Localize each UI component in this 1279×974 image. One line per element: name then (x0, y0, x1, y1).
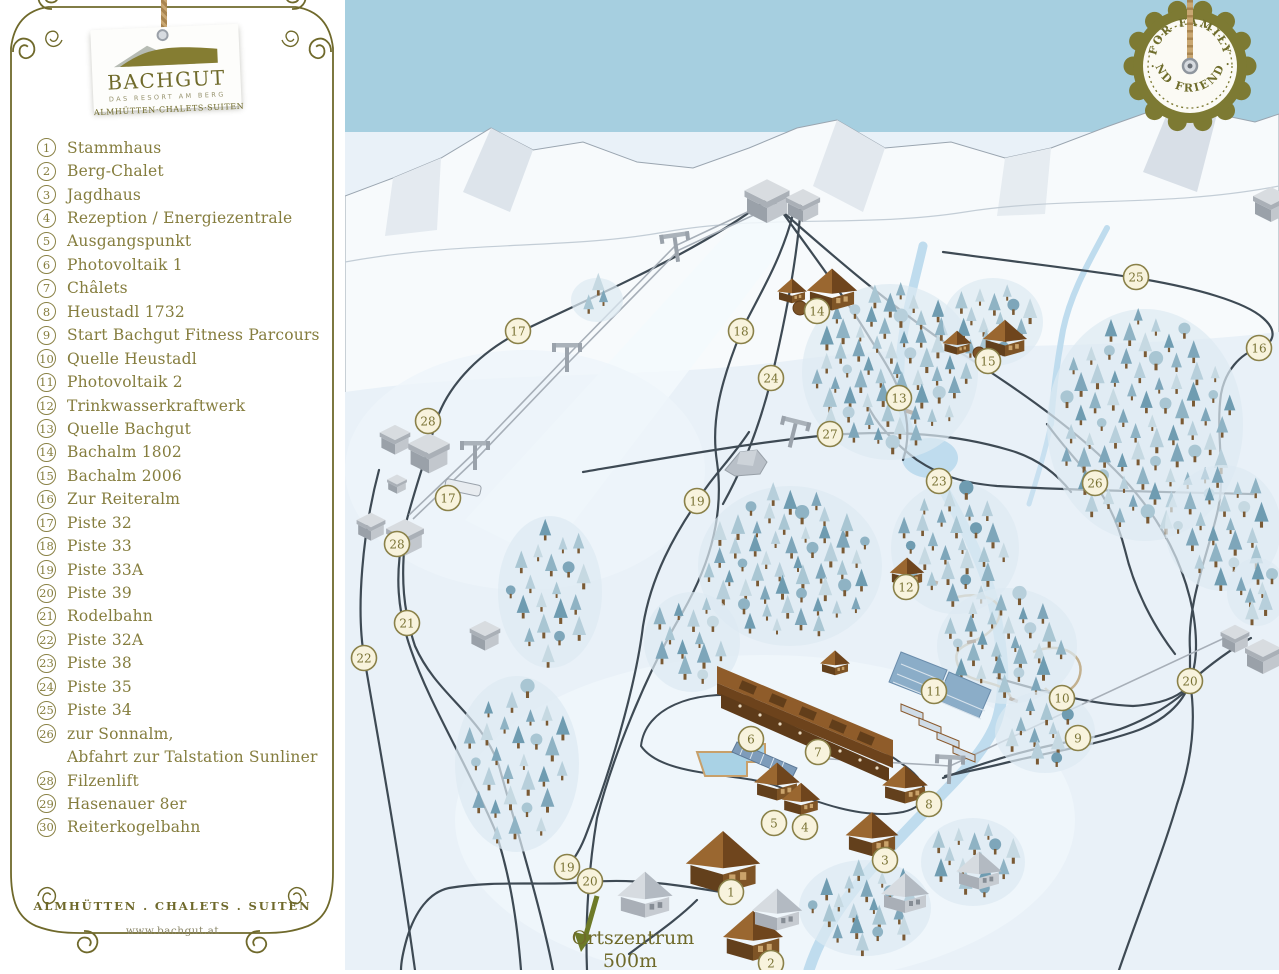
legend-label: Piste 32 (67, 514, 132, 532)
svg-text:16: 16 (1251, 342, 1266, 356)
legend-number-badge: 3 (37, 185, 56, 204)
svg-text:1: 1 (727, 886, 735, 900)
legend-number-badge: 21 (37, 607, 56, 626)
legend-item-29: 29Hasenauer 8er (0, 792, 345, 815)
legend-item-9: 9Start Bachgut Fitness Parcours (0, 324, 345, 347)
footer-website-link[interactable]: www.bachgut.at (0, 925, 345, 937)
legend-label: Piste 39 (67, 584, 132, 602)
legend-label: Piste 34 (67, 701, 132, 719)
map-illustration: 1718142516152413282723261917281221222011… (345, 0, 1279, 970)
legend-label: Photovoltaik 1 (67, 256, 183, 274)
map-marker-25: 25 (1124, 265, 1149, 290)
legend-item-1: 1Stammhaus (0, 136, 345, 159)
legend-item-21: 21Rodelbahn (0, 605, 345, 628)
legend-item-17: 17Piste 32 (0, 511, 345, 534)
legend-label: Piste 35 (67, 678, 132, 696)
legend-number-badge: 6 (37, 255, 56, 274)
legend-number-badge: 1 (37, 138, 56, 157)
svg-text:7: 7 (814, 746, 822, 760)
svg-text:20: 20 (1182, 675, 1197, 689)
legend-number-badge: 12 (37, 396, 56, 415)
map-marker-24: 24 (759, 366, 784, 391)
svg-text:11: 11 (926, 685, 941, 699)
legend-number-badge: 8 (37, 302, 56, 321)
map-marker-20: 20 (578, 869, 603, 894)
map-marker-10: 10 (1050, 686, 1075, 711)
legend-number-badge: 29 (37, 794, 56, 813)
legend-number-badge: 30 (37, 818, 56, 837)
svg-text:17: 17 (440, 492, 455, 506)
legend-item-30: 30Reiterkogelbahn (0, 816, 345, 839)
legend-number-badge: 22 (37, 630, 56, 649)
legend-label: Quelle Bachgut (67, 420, 191, 438)
map-marker-23: 23 (927, 469, 952, 494)
map-marker-11: 11 (922, 679, 947, 704)
legend-number-badge: 16 (37, 490, 56, 509)
map-marker-4: 4 (793, 815, 818, 840)
svg-text:14: 14 (809, 305, 825, 319)
svg-text:18: 18 (733, 325, 748, 339)
svg-text:3: 3 (881, 854, 889, 868)
legend-item-14: 14Bachalm 1802 (0, 441, 345, 464)
mountain-logo-icon (105, 37, 226, 68)
legend-item-20: 20Piste 39 (0, 581, 345, 604)
legend-number-badge: 13 (37, 419, 56, 438)
legend-item-4: 4Rezeption / Energiezentrale (0, 206, 345, 229)
legend-number-badge: 23 (37, 654, 56, 673)
map-marker-19: 19 (555, 855, 580, 880)
map-marker-21: 21 (395, 611, 420, 636)
legend-label: Stammhaus (67, 139, 161, 157)
legend-number-badge: 17 (37, 513, 56, 532)
legend-label: Zur Reiteralm (67, 490, 180, 508)
svg-text:28: 28 (389, 538, 404, 552)
map-marker-9: 9 (1066, 726, 1091, 751)
map-marker-28: 28 (416, 409, 441, 434)
footer-tagline: ALMHÜTTEN . CHALETS . SUITEN (0, 899, 345, 913)
legend-number-badge: 14 (37, 443, 56, 462)
legend-item-23: 23Piste 38 (0, 652, 345, 675)
legend-item-18: 18Piste 33 (0, 534, 345, 557)
resort-map: 1718142516152413282723261917281221222011… (345, 0, 1279, 970)
legend-number-badge: 7 (37, 279, 56, 298)
legend-item-12: 12Trinkwasserkraftwerk (0, 394, 345, 417)
legend-label: Photovoltaik 2 (67, 373, 183, 391)
legend-sidebar: BACHGUT DAS RESORT AM BERG ALMHÜTTEN·CHA… (0, 0, 345, 970)
legend-item-3: 3Jagdhaus (0, 183, 345, 206)
map-marker-8: 8 (917, 792, 942, 817)
legend-item-13: 13Quelle Bachgut (0, 417, 345, 440)
legend-number-badge: 4 (37, 209, 56, 228)
legend-label: Trinkwasserkraftwerk (67, 397, 245, 415)
legend-label: Heustadl 1732 (67, 303, 185, 321)
svg-text:22: 22 (356, 652, 371, 666)
svg-text:19: 19 (559, 861, 574, 875)
legend-number-badge: 19 (37, 560, 56, 579)
map-marker-19: 19 (685, 489, 710, 514)
legend-number-badge: 10 (37, 349, 56, 368)
svg-text:2: 2 (767, 957, 775, 971)
legend-item-19: 19Piste 33A (0, 558, 345, 581)
map-marker-2: 2 (759, 951, 784, 971)
map-marker-13: 13 (887, 386, 912, 411)
legend-label: Ausgangspunkt (67, 232, 191, 250)
legend-number-badge: 20 (37, 584, 56, 603)
tree-cluster (498, 516, 602, 668)
legend-list: 1Stammhaus2Berg-Chalet3Jagdhaus4Rezeptio… (0, 136, 345, 839)
legend-item-8: 8Heustadl 1732 (0, 300, 345, 323)
svg-text:17: 17 (510, 325, 525, 339)
legend-label: Jagdhaus (67, 186, 141, 204)
legend-label: Piste 33A (67, 561, 143, 579)
legend-item-2: 2Berg-Chalet (0, 159, 345, 182)
legend-item-11: 11Photovoltaik 2 (0, 370, 345, 393)
map-marker-17: 17 (506, 319, 531, 344)
map-marker-5: 5 (762, 811, 787, 836)
legend-label: Piste 32A (67, 631, 143, 649)
svg-text:8: 8 (925, 798, 933, 812)
svg-text:12: 12 (898, 581, 913, 595)
map-marker-17: 17 (436, 486, 461, 511)
legend-number-badge: 2 (37, 162, 56, 181)
legend-label: Châlets (67, 279, 128, 297)
legend-number-badge: 26 (37, 724, 56, 743)
map-marker-22: 22 (352, 646, 377, 671)
map-marker-15: 15 (976, 349, 1001, 374)
legend-item-25: 25Piste 34 (0, 699, 345, 722)
legend-item-7: 7Châlets (0, 277, 345, 300)
map-marker-1: 1 (719, 880, 744, 905)
map-marker-3: 3 (873, 848, 898, 873)
resort-logo-card: BACHGUT DAS RESORT AM BERG ALMHÜTTEN·CHA… (90, 24, 241, 112)
legend-item-26: 26zur Sonnalm, (0, 722, 345, 745)
legend-label: Berg-Chalet (67, 162, 164, 180)
svg-text:13: 13 (891, 392, 906, 406)
svg-text:24: 24 (763, 372, 779, 386)
svg-text:5: 5 (770, 817, 778, 831)
legend-number-badge: 18 (37, 537, 56, 556)
legend-item-22: 22Piste 32A (0, 628, 345, 651)
legend-label: Filzenlift (67, 772, 139, 790)
svg-text:26: 26 (1087, 477, 1102, 491)
ortszentrum-distance: 500m (603, 950, 657, 970)
legend-label: Piste 38 (67, 654, 132, 672)
map-marker-28: 28 (385, 532, 410, 557)
legend-label: zur Sonnalm, (67, 725, 174, 743)
map-marker-16: 16 (1247, 336, 1272, 361)
svg-text:20: 20 (582, 875, 597, 889)
legend-label: Rezeption / Energiezentrale (67, 209, 292, 227)
legend-number-badge: 9 (37, 326, 56, 345)
svg-text:15: 15 (980, 355, 995, 369)
svg-text:10: 10 (1054, 692, 1069, 706)
svg-text:9: 9 (1074, 732, 1082, 746)
legend-item-6: 6Photovoltaik 1 (0, 253, 345, 276)
legend-item-26-cont: Abfahrt zur Talstation Sunliner (0, 745, 345, 768)
legend-item-16: 16Zur Reiteralm (0, 488, 345, 511)
legend-number-badge: 25 (37, 701, 56, 720)
legend-label: Abfahrt zur Talstation Sunliner (67, 748, 318, 766)
legend-item-10: 10Quelle Heustadl (0, 347, 345, 370)
legend-label: Rodelbahn (67, 607, 153, 625)
legend-item-24: 24Piste 35 (0, 675, 345, 698)
svg-text:6: 6 (747, 733, 755, 747)
legend-number-badge: 28 (37, 771, 56, 790)
svg-text:27: 27 (822, 428, 837, 442)
ortszentrum-label: Ortszentrum (572, 927, 695, 949)
legend-item-28: 28Filzenlift (0, 769, 345, 792)
tree-cluster (455, 676, 579, 852)
legend-item-15: 15Bachalm 2006 (0, 464, 345, 487)
map-marker-26: 26 (1083, 471, 1108, 496)
map-marker-14: 14 (805, 299, 830, 324)
svg-text:25: 25 (1128, 271, 1143, 285)
legend-number-badge: 24 (37, 677, 56, 696)
legend-item-5: 5Ausgangspunkt (0, 230, 345, 253)
legend-label: Piste 33 (67, 537, 132, 555)
svg-text:28: 28 (420, 415, 435, 429)
legend-label: Bachalm 2006 (67, 467, 182, 485)
legend-number-badge: 15 (37, 466, 56, 485)
map-marker-27: 27 (818, 422, 843, 447)
legend-label: Hasenauer 8er (67, 795, 187, 813)
legend-number-badge: 5 (37, 232, 56, 251)
legend-number-badge: 11 (37, 373, 56, 392)
svg-text:4: 4 (801, 821, 809, 835)
map-marker-12: 12 (894, 575, 919, 600)
legend-label: Bachalm 1802 (67, 443, 182, 461)
legend-label: Reiterkogelbahn (67, 818, 201, 836)
svg-text:19: 19 (689, 495, 704, 509)
legend-label: Quelle Heustadl (67, 350, 197, 368)
legend-label: Start Bachgut Fitness Parcours (67, 326, 320, 344)
svg-text:23: 23 (931, 475, 946, 489)
svg-text:21: 21 (399, 617, 414, 631)
map-marker-18: 18 (729, 319, 754, 344)
map-marker-6: 6 (739, 727, 764, 752)
map-marker-20: 20 (1178, 669, 1203, 694)
map-marker-7: 7 (806, 740, 831, 765)
